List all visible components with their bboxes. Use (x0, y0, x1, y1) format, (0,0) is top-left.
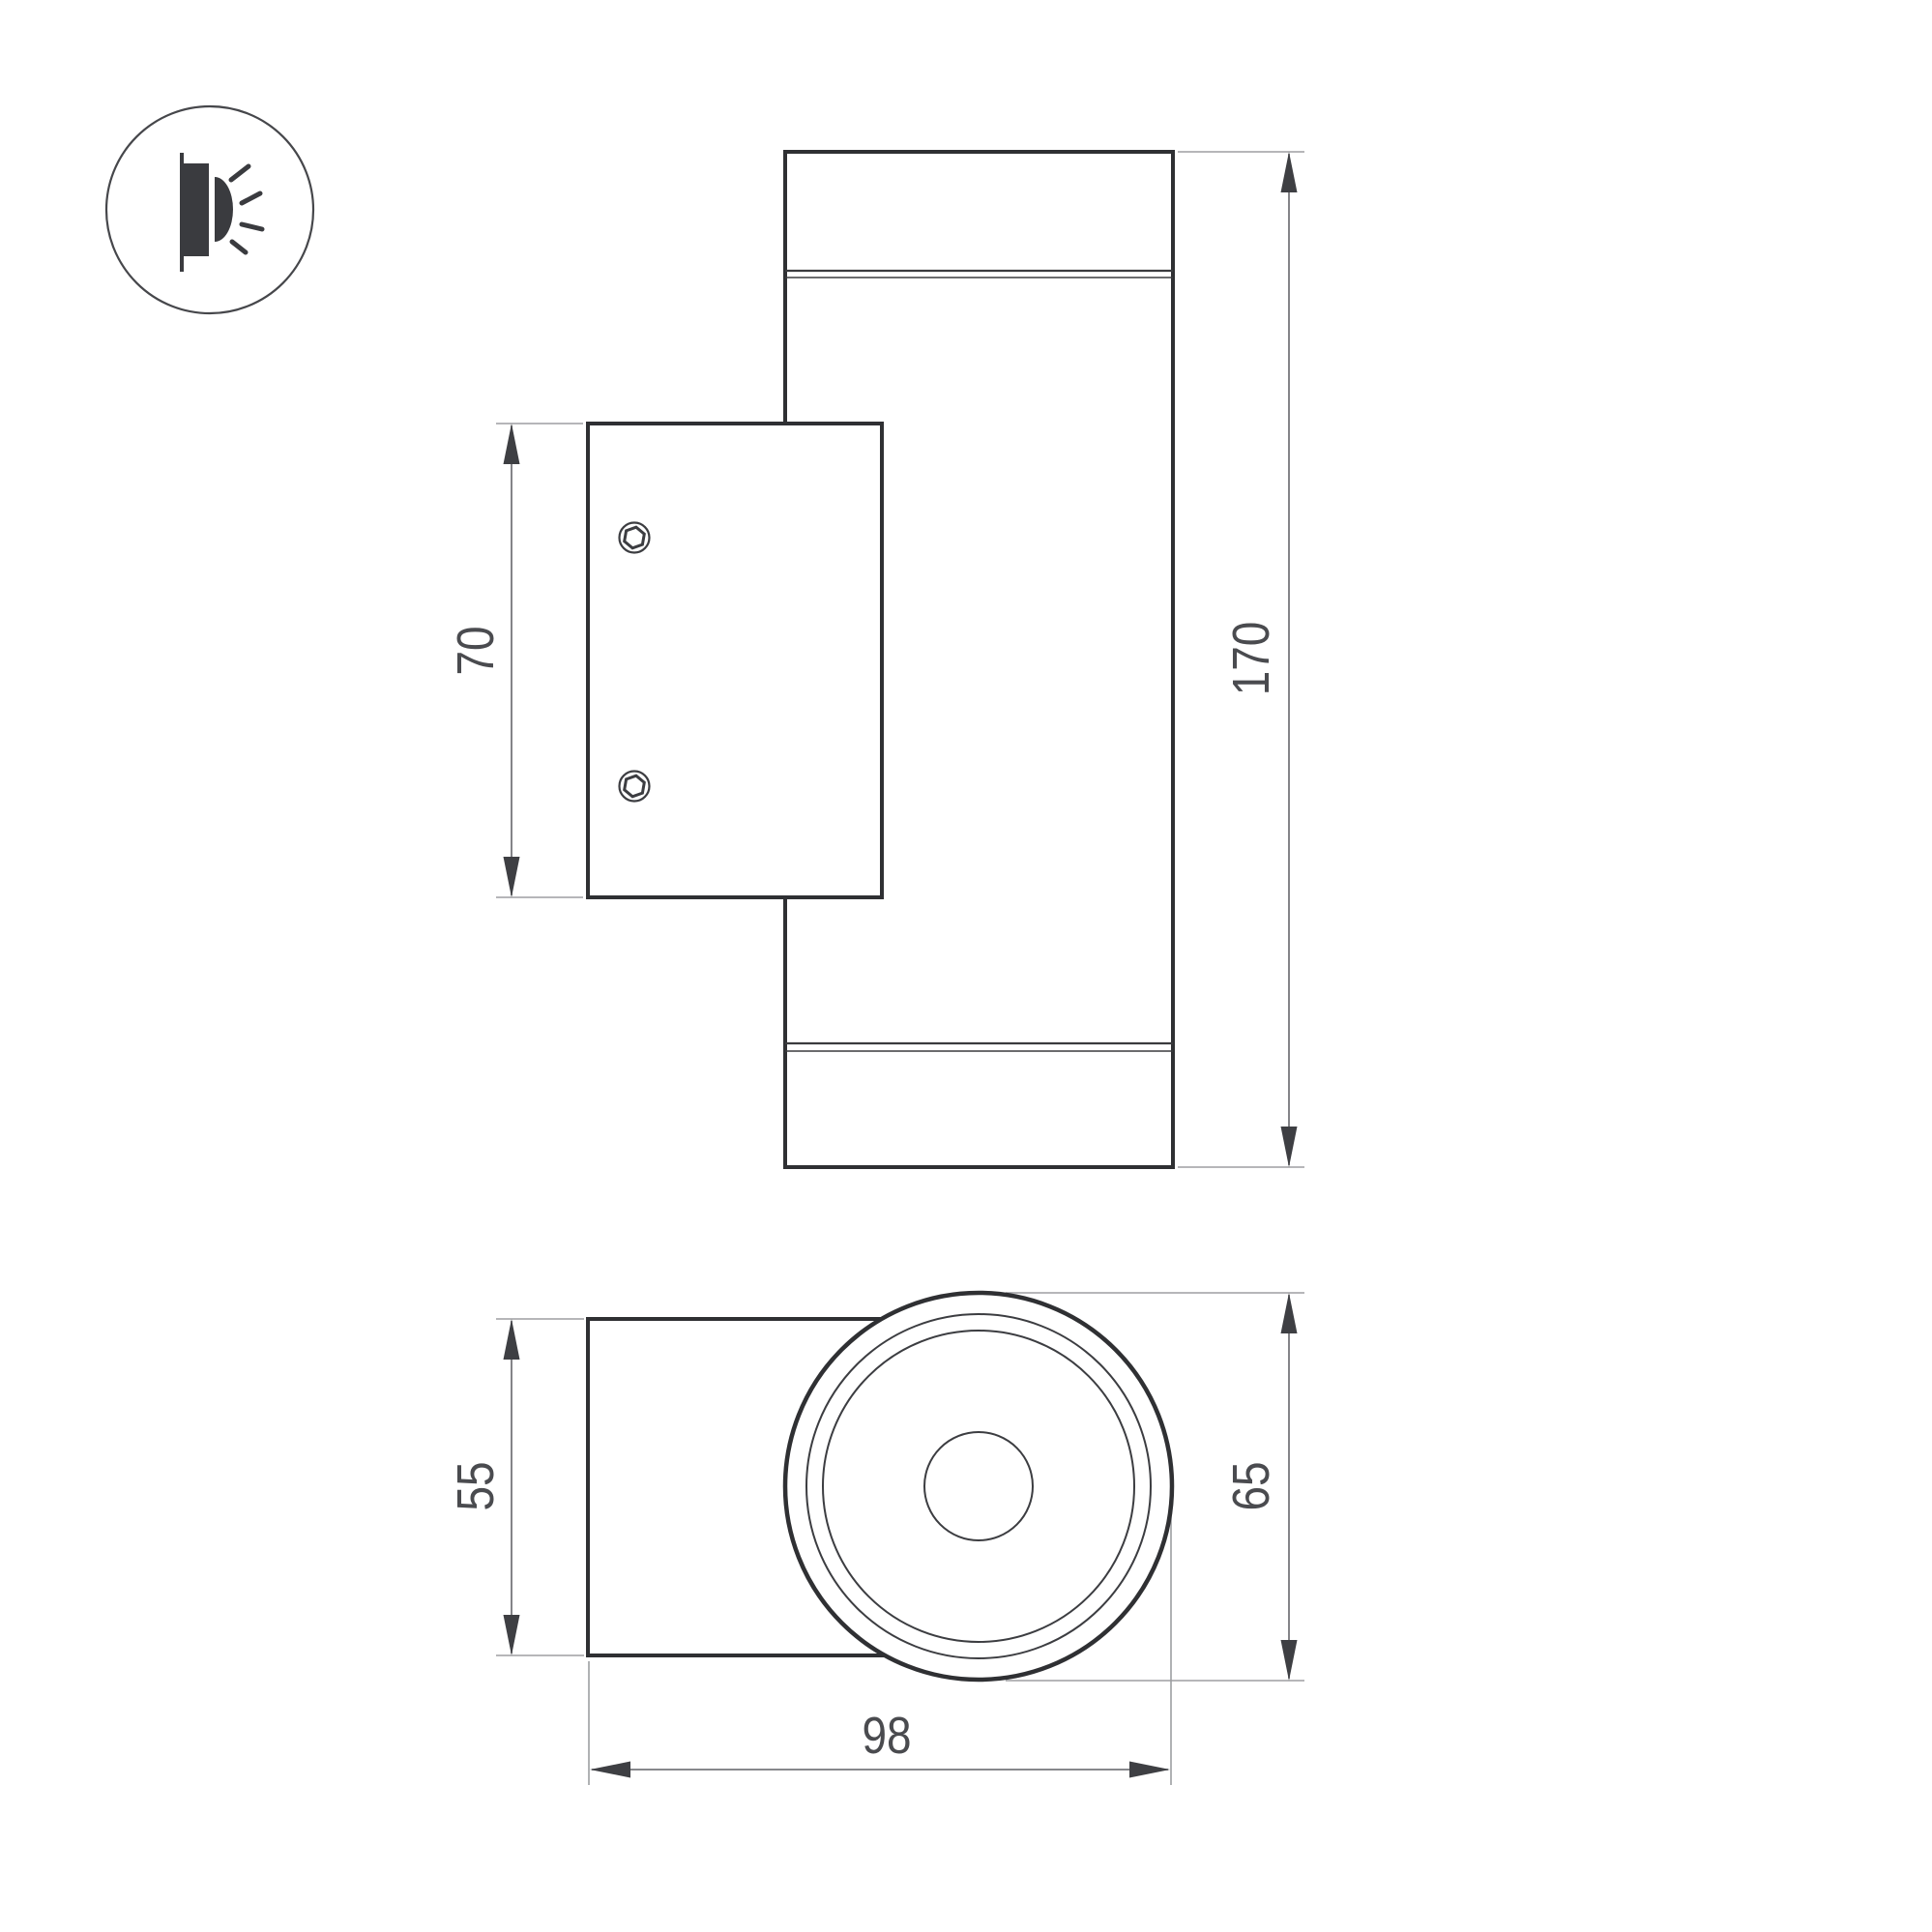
dim-label-total-depth: 98 (862, 1710, 911, 1762)
icon-border-circle (106, 106, 313, 313)
arrow-65-down (1281, 1640, 1298, 1681)
dim-label-body-height: 170 (1225, 622, 1277, 696)
icon-ray-3 (242, 224, 262, 229)
side-view (588, 152, 1173, 1167)
icon-ray-2 (242, 193, 260, 203)
icon-light-rays (231, 166, 262, 252)
arrow-65-up (1281, 1293, 1298, 1333)
dim-label-body-diameter: 65 (1225, 1461, 1277, 1510)
arrow-170-up (1281, 152, 1298, 192)
arrow-70-down (504, 857, 520, 897)
mounting-plate-outline (588, 424, 882, 897)
icon-ray-4 (232, 242, 246, 252)
dim-label-plate-height: 70 (450, 626, 502, 675)
icon-ray-1 (231, 166, 249, 180)
wall-lamp-glow-icon (106, 106, 313, 313)
arrow-170-down (1281, 1127, 1298, 1167)
icon-light-dome (215, 177, 233, 242)
bottom-view (588, 1293, 1172, 1680)
dim-label-mount-depth: 55 (450, 1461, 502, 1510)
body-outer-circle (785, 1293, 1172, 1680)
arrow-98-right (1129, 1762, 1170, 1778)
luminaire-dimension-drawing (0, 0, 1932, 1932)
technical-drawing-canvas: 70 170 55 65 98 (0, 0, 1932, 1932)
arrow-70-up (504, 424, 520, 464)
arrow-55-up (504, 1319, 520, 1360)
arrow-55-down (504, 1615, 520, 1655)
icon-lamp-body (184, 163, 209, 256)
arrow-98-left (590, 1762, 630, 1778)
